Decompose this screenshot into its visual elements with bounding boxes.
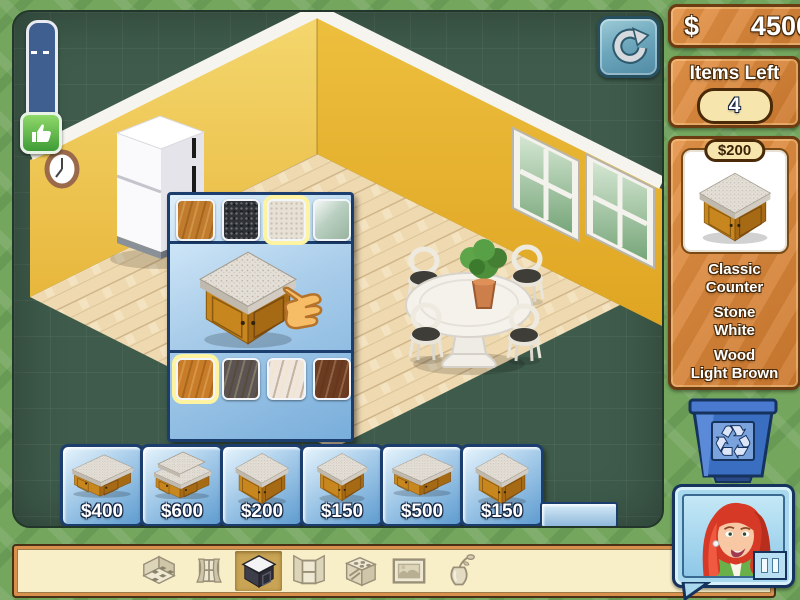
picture-frame-icon (390, 554, 428, 588)
satisfaction-meter (20, 20, 64, 150)
tray-overflow-tab[interactable] (540, 502, 618, 528)
items-left-count: 4 (729, 94, 741, 118)
item-price: $150 (303, 501, 381, 523)
item-price: $150 (463, 501, 541, 523)
currency-symbol: $ (684, 11, 699, 42)
item-name-line: Classic (671, 261, 798, 279)
money-panel: $ 4500 (668, 4, 800, 48)
wall-clock[interactable] (47, 152, 77, 186)
item-name-line: Counter (671, 279, 798, 297)
tray-item-curved-counter[interactable]: $150 (460, 444, 544, 527)
surface-swatch-row (170, 195, 351, 244)
item-surface-line: White (671, 322, 798, 340)
rotate-room-button[interactable] (597, 16, 660, 78)
wood-swatch-row (170, 350, 351, 454)
item-price: $200 (223, 501, 301, 523)
tool-plants[interactable] (435, 551, 482, 591)
rotate-icon (608, 26, 650, 68)
selected-item-price-badge: $200 (704, 139, 765, 162)
advisor-bubble[interactable] (672, 484, 795, 588)
item-surface-line: Stone (671, 304, 798, 322)
tray-item-long-counter[interactable]: $500 (380, 444, 464, 527)
recycle-bin-button[interactable]: ♻ (684, 392, 782, 484)
category-toolbar (14, 546, 774, 596)
item-price: $600 (143, 501, 221, 523)
tray-item-island-counter[interactable]: $400 (60, 444, 144, 527)
money-amount: 4500 (751, 11, 800, 42)
tool-windows[interactable] (185, 551, 232, 591)
item-price: $400 (63, 501, 141, 523)
tool-floors[interactable] (135, 551, 182, 591)
svg-text:♻: ♻ (712, 416, 753, 468)
tool-cabinets[interactable] (285, 551, 332, 591)
thumbs-up-button[interactable] (20, 112, 62, 154)
curtains-icon (192, 554, 226, 588)
item-finish-line: Light Brown (671, 365, 798, 383)
tray-item-small-counter[interactable]: $150 (300, 444, 384, 527)
recycle-bin-icon: ♻ (684, 392, 782, 484)
tool-counters[interactable] (235, 551, 282, 591)
items-left-count-pill: 4 (697, 88, 773, 124)
tool-appliances[interactable] (335, 551, 382, 591)
pause-button[interactable] (753, 551, 787, 580)
swatch-gray-wood[interactable] (222, 358, 261, 400)
play-area: $400 $600 $200 $150 $500 $150 (12, 10, 664, 528)
tray-item-corner-counter[interactable]: $200 (220, 444, 304, 527)
item-finish-line: Wood (671, 347, 798, 365)
swatch-black-granite[interactable] (222, 199, 261, 241)
selected-item-panel: $200 Classic Counter Stone White Wood Li… (668, 136, 800, 390)
selected-item-image-box: $200 (681, 148, 789, 254)
item-customizer-popup (167, 192, 354, 442)
swatch-white-stone[interactable] (267, 199, 306, 241)
selected-item-image (695, 170, 775, 244)
swatch-white-wood[interactable] (267, 358, 306, 400)
swatch-green-marble[interactable] (313, 199, 352, 241)
open-cabinet-icon (290, 554, 328, 588)
items-left-label: Items Left (671, 63, 798, 85)
pause-icon (761, 558, 768, 573)
item-price: $500 (383, 501, 461, 523)
vase-icon (441, 553, 477, 589)
bubble-tail (681, 582, 711, 600)
counter-icon (240, 553, 278, 589)
swatch-dark-brown-wood[interactable] (313, 358, 352, 400)
meter-threshold (31, 51, 49, 54)
item-drag-preview[interactable] (170, 244, 351, 350)
tray-item-bar-counter[interactable]: $600 (140, 444, 224, 527)
stove-icon (340, 554, 378, 588)
floor-tiles-icon (140, 554, 178, 588)
thumbs-up-icon (28, 120, 54, 146)
drag-hand-icon (277, 282, 329, 330)
swatch-butcher-block[interactable] (176, 199, 215, 241)
tool-decor[interactable] (385, 551, 432, 591)
swatch-light-brown-wood[interactable] (176, 358, 215, 400)
items-left-panel: Items Left 4 (668, 56, 800, 128)
